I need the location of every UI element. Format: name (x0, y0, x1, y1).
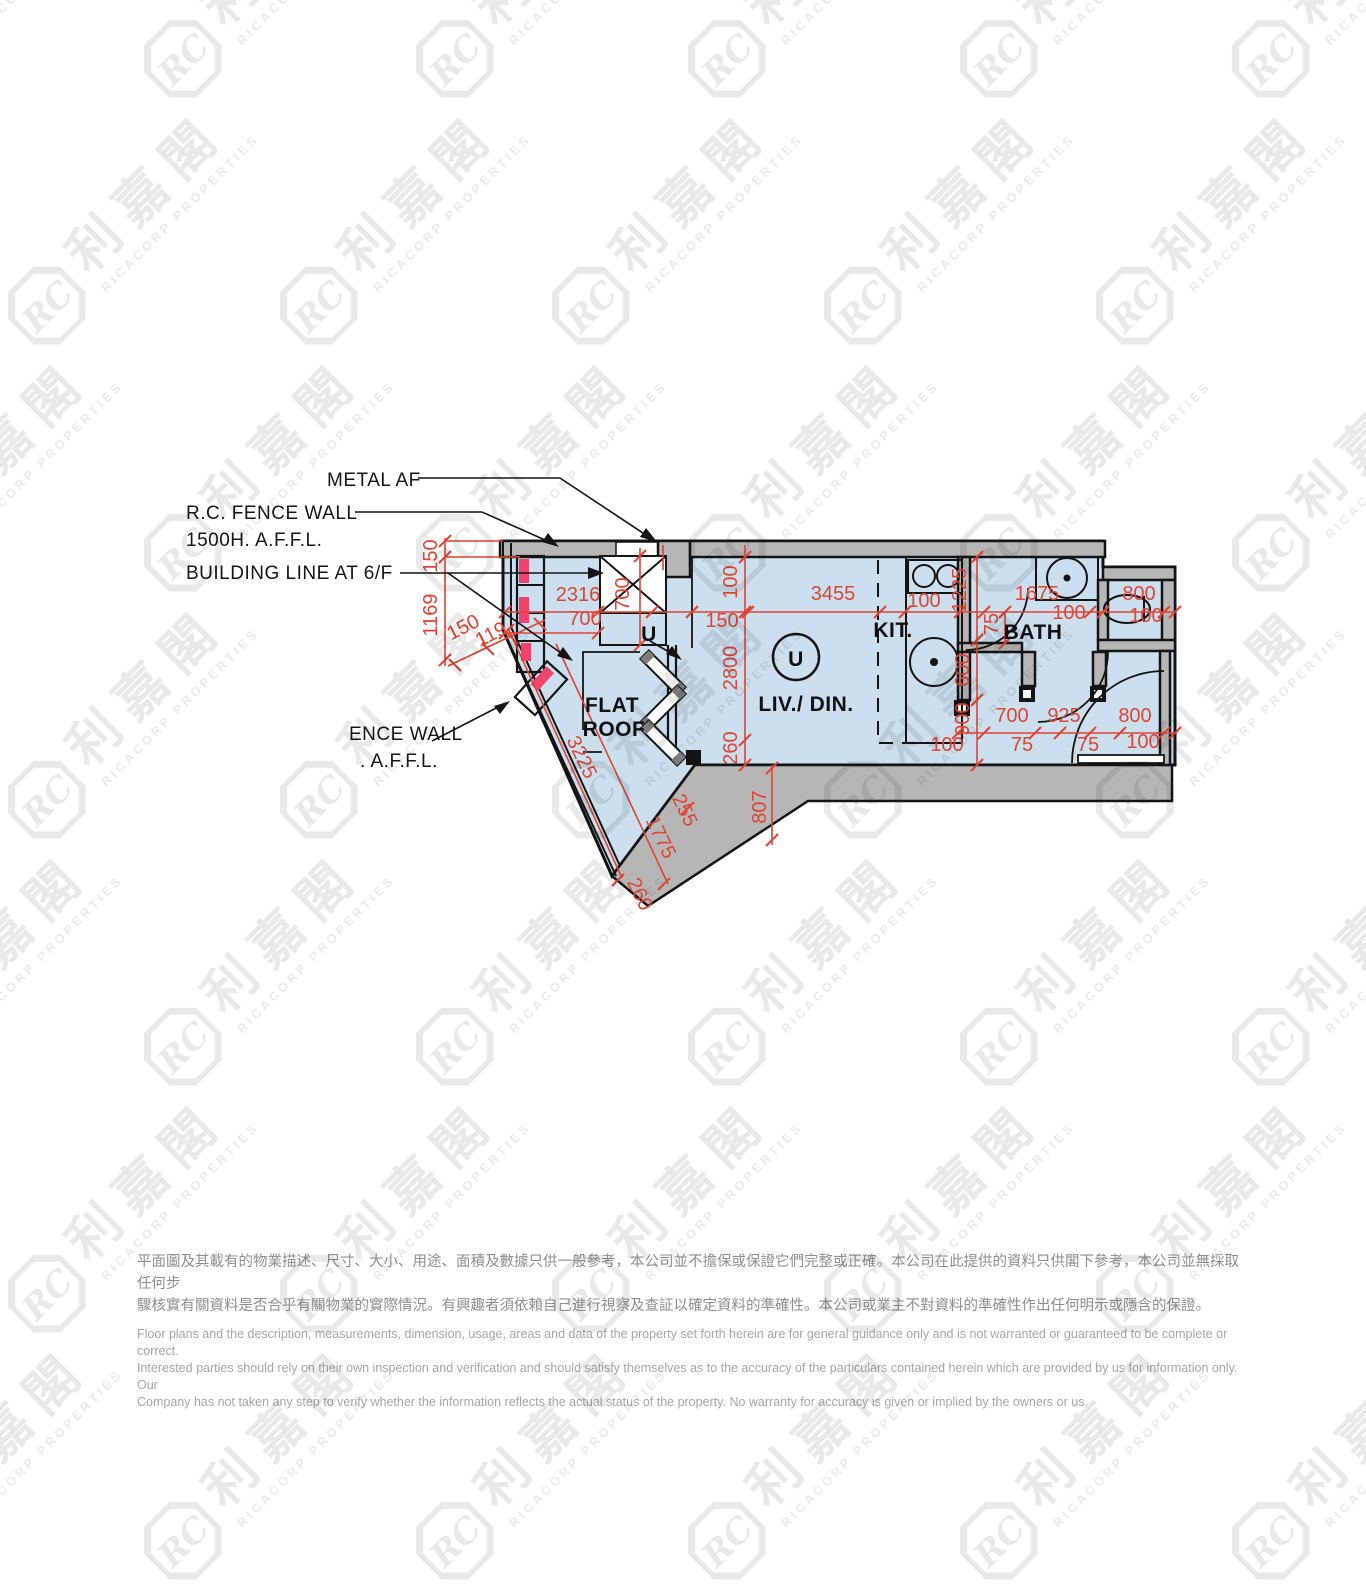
fence-highlight (519, 559, 529, 583)
door-stub-left (1022, 652, 1035, 686)
room-flat-roof: FLAT (585, 694, 639, 717)
disclaimer-english-line: Floor plans and the description, measure… (137, 1326, 1242, 1360)
dimension-label: 100 (720, 565, 742, 598)
room-kitchen: KIT. (873, 619, 912, 642)
dimension-label: 100 (1129, 605, 1162, 627)
svg-text:RC: RC (1238, 1508, 1306, 1576)
disclaimer-chinese-line: 驟核實有關資料是否合乎有關物業的實際情況。有興趣者須依賴自己進行視察及查証以確定… (137, 1295, 1242, 1317)
dimension-label: 100 (1052, 602, 1085, 624)
dimension-label: 700 (995, 705, 1028, 727)
right-lower-wall (1160, 651, 1170, 765)
dimension-label: 100 (930, 734, 963, 756)
ricacorp-logo-icon: RC (403, 1488, 508, 1593)
dimension-label: 700 (568, 608, 601, 630)
room-living-dining: LIV./ DIN. (758, 693, 853, 716)
callout-ence-wall-affl: . A.F.F.L. (360, 751, 438, 772)
room-bath: BATH (1004, 621, 1063, 644)
dimension-label: 150 (705, 610, 738, 632)
ricacorp-logo-icon: RC (675, 1488, 780, 1593)
dimension-label: 100 (907, 590, 940, 612)
unit-label: U (788, 648, 804, 671)
disclaimer-chinese-line: 平面圖及其載有的物業描述、尺寸、大小、用途、面積及數據只供一般參考，本公司並不擔… (137, 1251, 1242, 1295)
door-stub-right (1093, 652, 1106, 686)
dimension-label: 800 (1118, 705, 1151, 727)
dimension-label: 2800 (720, 646, 742, 691)
dimension-label: 75 (1011, 734, 1033, 756)
nook-south-wall (1098, 640, 1175, 651)
svg-text:RC: RC (694, 1508, 762, 1576)
disclaimer: 平面圖及其載有的物業描述、尺寸、大小、用途、面積及數據只供一般參考，本公司並不擔… (137, 1251, 1242, 1411)
svg-text:RC: RC (150, 1508, 218, 1576)
bottom-wall-band (612, 765, 1172, 906)
ricacorp-logo-icon: RC (131, 1488, 236, 1593)
dimension-label: 75 (1077, 734, 1099, 756)
dimension-label: 600 (952, 653, 974, 686)
dimension-label: 75 (981, 613, 1003, 635)
watermark-english: RICACORP PROPERTIES (1323, 1367, 1366, 1529)
dimension-label: 150 (420, 539, 442, 572)
entrance-label: U (641, 623, 657, 646)
dimension-label: 260 (720, 731, 742, 764)
nook-west-wall (1098, 580, 1108, 640)
fence-highlight (519, 597, 529, 623)
nook-north-wall (1103, 567, 1175, 580)
dimension-label: 1225 (949, 568, 971, 613)
disclaimer-english-line: Company has not taken any step to verify… (137, 1394, 1242, 1411)
floor-plan: U U FLAT ROOF LIV./ DIN. KIT. BATH METAL… (0, 0, 1366, 1366)
dimension-label: 100 (1126, 731, 1159, 753)
callout-fence-wall: R.C. FENCE WALL (186, 503, 358, 524)
callout-fence-wall-height: 1500H. A.F.F.L. (186, 530, 322, 551)
svg-text:RC: RC (422, 1508, 490, 1576)
svg-text:RC: RC (966, 1508, 1034, 1576)
disclaimer-english: Floor plans and the description, measure… (137, 1326, 1242, 1411)
room-flat-roof: ROOF (583, 718, 646, 741)
dimension-label: 925 (1047, 705, 1080, 727)
ricacorp-logo-icon: RC (1219, 1488, 1324, 1593)
dimension-label: 3455 (811, 583, 856, 605)
top-wall (500, 541, 1105, 557)
dimension-label: 1169 (420, 593, 442, 636)
callout-building-line: BUILDING LINE AT 6/F (186, 563, 393, 584)
entrance-opening (616, 542, 658, 556)
door-leaf (1078, 755, 1164, 763)
dimension-label: 900 (952, 702, 974, 735)
ricacorp-logo-icon: RC (947, 1488, 1052, 1593)
disclaimer-chinese: 平面圖及其載有的物業描述、尺寸、大小、用途、面積及數據只供一般參考，本公司並不擔… (137, 1251, 1242, 1317)
dimension-label: 800 (1122, 583, 1155, 605)
callout-ence-wall: ENCE WALL (349, 724, 463, 745)
dimension-label: 700 (612, 577, 634, 610)
dimension-label: 2316 (556, 584, 601, 606)
watermark-english: RICACORP PROPERTIES (0, 1367, 125, 1529)
disclaimer-english-line: Interested parties should rely on their … (137, 1360, 1242, 1394)
dimension-label: 807 (749, 790, 771, 823)
callout-metal-af: METAL AF (327, 470, 421, 491)
